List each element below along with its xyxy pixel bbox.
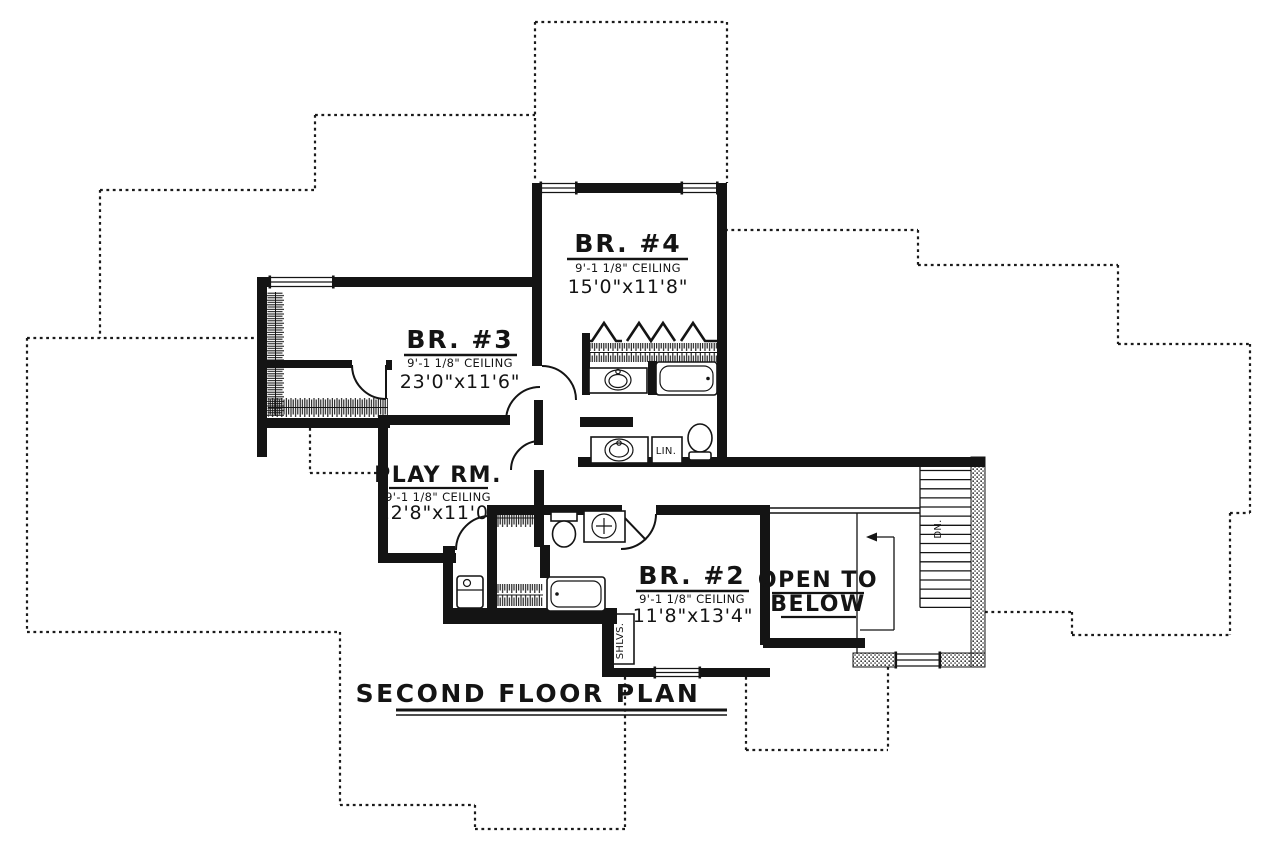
room-br4-ceiling: 9'-1 1/8" CEILING xyxy=(575,261,681,275)
floor-plan-page: BR. #4 9'-1 1/8" CEILING 15'0"x11'8" BR.… xyxy=(0,0,1280,853)
room-br3-name: BR. #3 xyxy=(406,325,513,354)
drawing-title: SECOND FLOOR PLAN xyxy=(356,679,727,715)
room-play-label: PLAY RM. 9'-1 1/8" CEILING 12'8"x11'0" xyxy=(374,463,502,524)
hall-closet xyxy=(492,507,543,606)
railing xyxy=(770,508,920,513)
br4-door-arc xyxy=(542,366,576,400)
br4-closet xyxy=(588,323,718,362)
stair-landing-window xyxy=(895,652,942,669)
room-br4-name: BR. #4 xyxy=(574,229,681,258)
tub-drain xyxy=(555,592,559,596)
room-play-dims: 12'8"x11'0" xyxy=(378,502,499,524)
room-br2-name: BR. #2 xyxy=(638,561,745,590)
stair-treads xyxy=(920,471,971,608)
room-br4-label: BR. #4 9'-1 1/8" CEILING 15'0"x11'8" xyxy=(567,229,688,298)
room-br2-ceiling: 9'-1 1/8" CEILING xyxy=(639,592,745,606)
linen-label: LIN. xyxy=(656,446,676,457)
br2-window xyxy=(654,667,702,679)
room-br2-dims: 11'8"x13'4" xyxy=(633,605,754,627)
room-br3-dims: 23'0"x11'6" xyxy=(400,371,521,393)
br4-window-right xyxy=(681,182,719,195)
open-to-below-label: OPEN TO BELOW xyxy=(758,568,878,617)
down-arrow-head xyxy=(866,533,877,542)
br3-window xyxy=(269,276,335,289)
br4-window-left xyxy=(540,182,578,195)
plan-title-text: SECOND FLOOR PLAN xyxy=(356,679,701,708)
room-br3-ceiling: 9'-1 1/8" CEILING xyxy=(407,356,513,370)
room-br3-label: BR. #3 9'-1 1/8" CEILING 23'0"x11'6" xyxy=(400,325,521,393)
toilet xyxy=(688,424,712,452)
closet-door-arc xyxy=(352,365,386,399)
room-br2-label: BR. #2 9'-1 1/8" CEILING 11'8"x13'4" xyxy=(633,561,754,627)
second-floor-plan-drawing: BR. #4 9'-1 1/8" CEILING 15'0"x11'8" BR.… xyxy=(0,0,1280,853)
playroom-door-arc xyxy=(511,441,540,470)
room-br4-dims: 15'0"x11'8" xyxy=(568,276,689,298)
open-below-line1: OPEN TO xyxy=(758,568,878,593)
down-label: DN. xyxy=(933,519,944,538)
staircase xyxy=(770,467,971,653)
room-play-name: PLAY RM. xyxy=(374,463,502,488)
toilet xyxy=(553,521,576,547)
tub-drain xyxy=(706,377,710,381)
shelves-label: SHLVS. xyxy=(615,623,626,660)
br3-walkin-closet xyxy=(267,292,388,417)
toilet-tank xyxy=(551,512,577,521)
vanity xyxy=(589,368,647,393)
open-below-line2: BELOW xyxy=(770,592,866,617)
